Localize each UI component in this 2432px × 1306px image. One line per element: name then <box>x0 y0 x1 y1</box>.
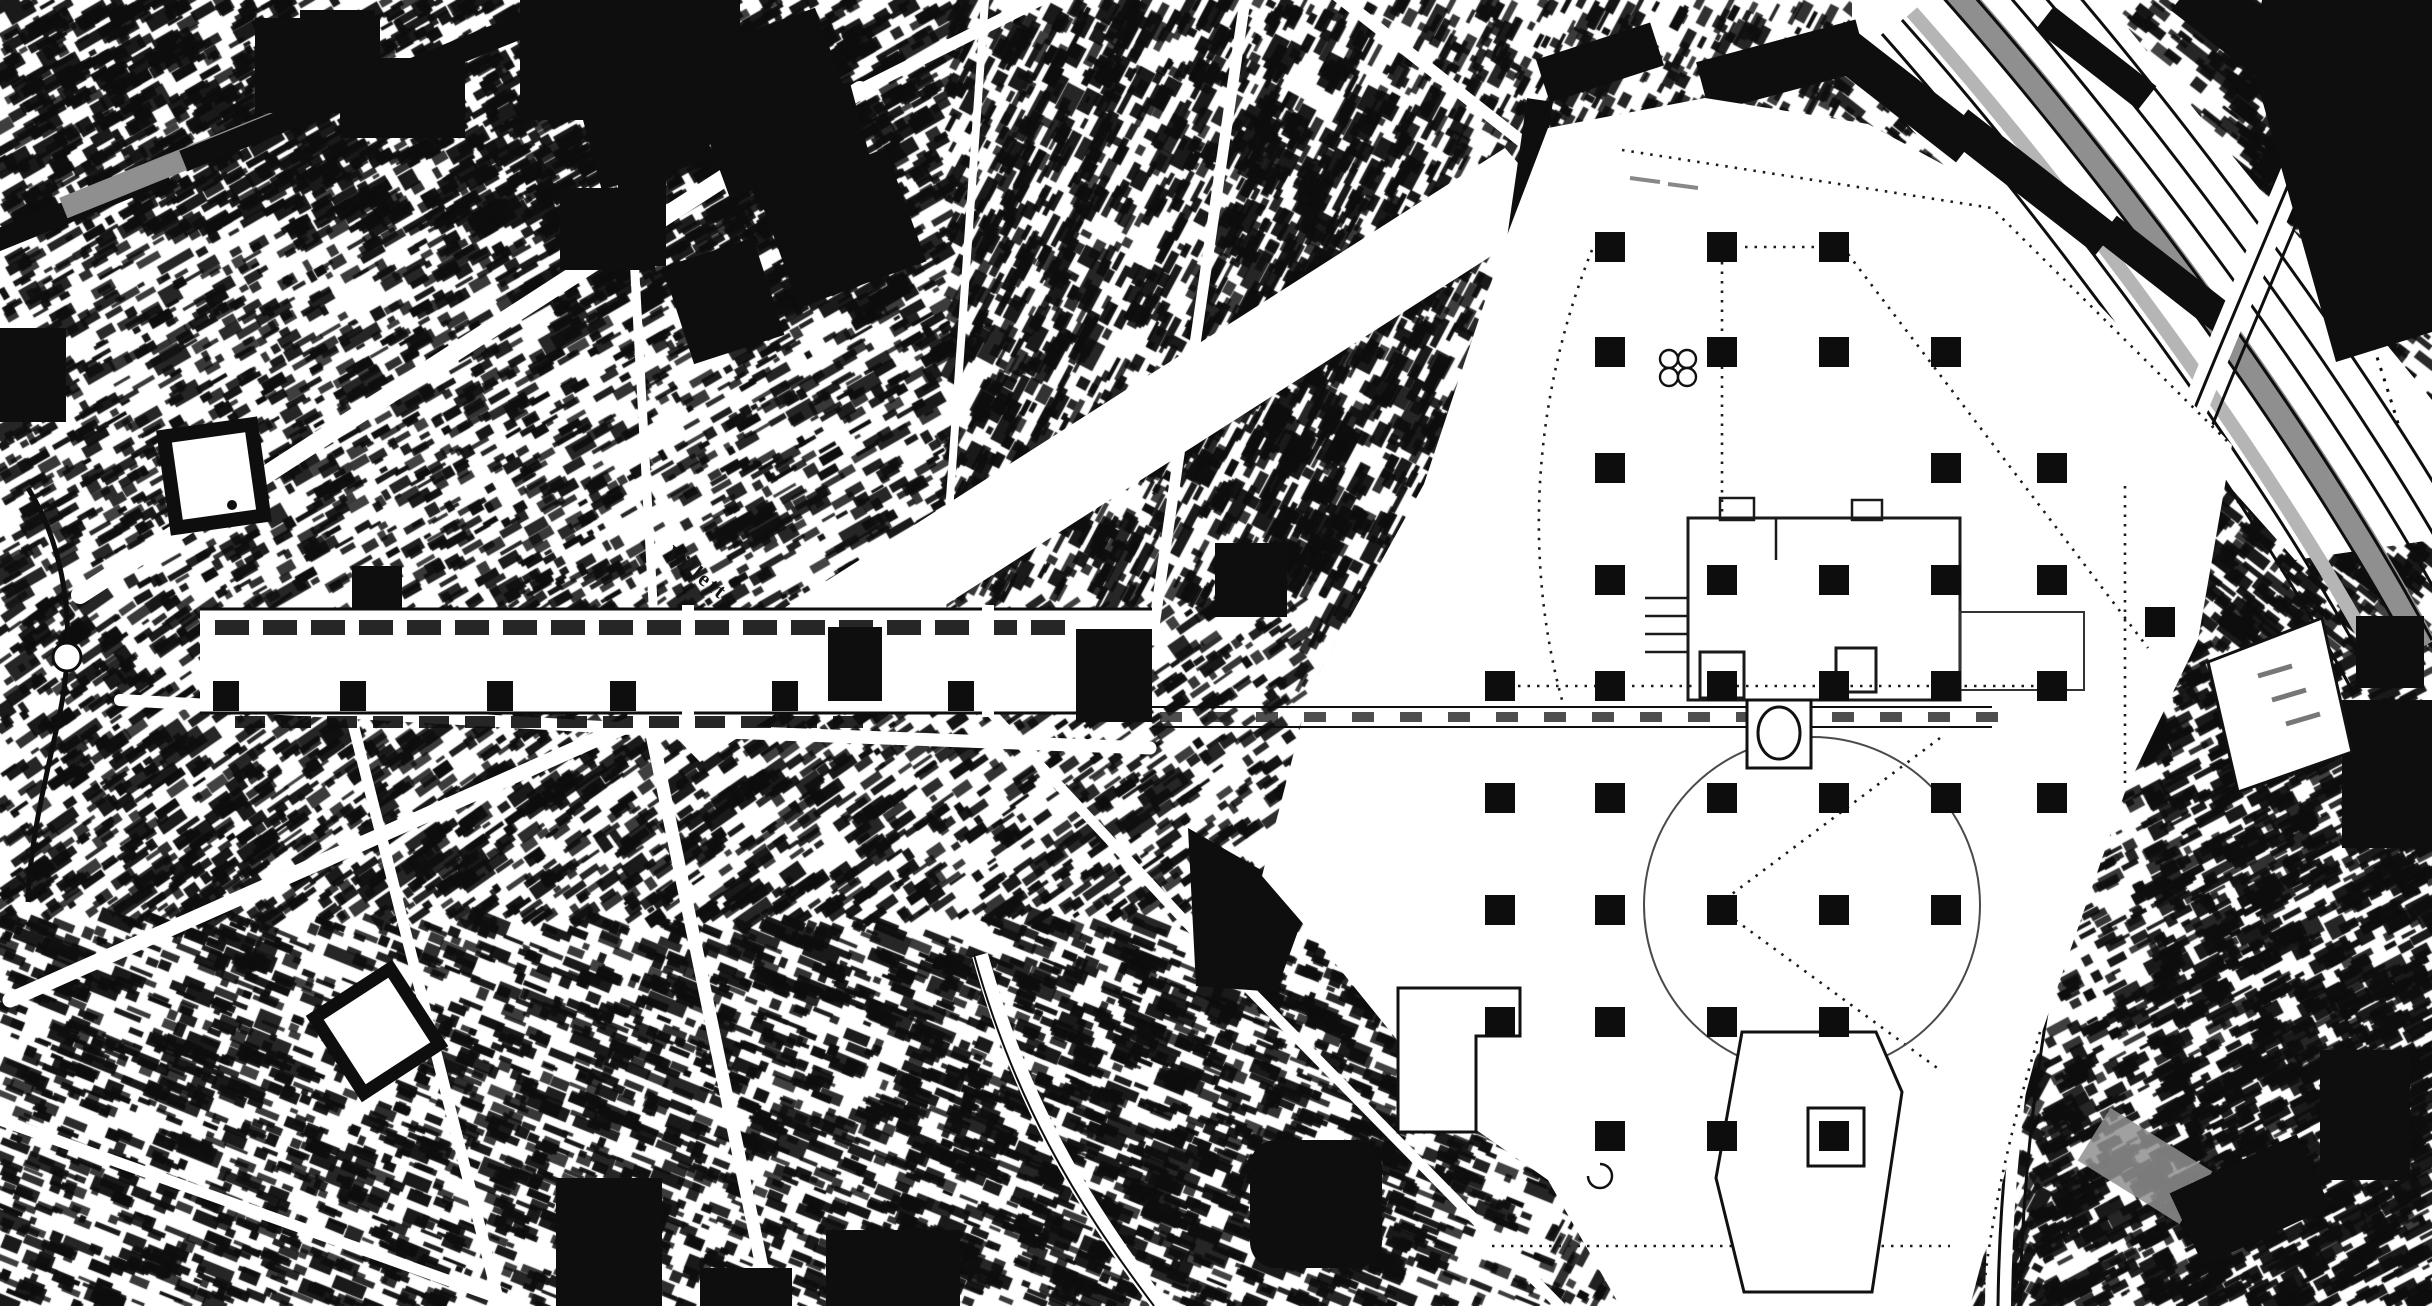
street <box>1330 0 1548 162</box>
folly-square <box>1819 895 1849 925</box>
basin-end-building <box>828 627 882 701</box>
folly-square <box>1819 1007 1849 1037</box>
quay-warehouse-dash <box>1031 620 1065 635</box>
folly-square <box>1595 1121 1625 1151</box>
park-canal-dash <box>1496 712 1518 722</box>
folly-square <box>1595 671 1625 701</box>
large-building <box>1215 543 1287 617</box>
large-building <box>1696 20 1869 113</box>
park-canal-dash <box>1976 712 1998 722</box>
large-building <box>556 1178 662 1306</box>
large-building <box>2356 616 2424 688</box>
quay-warehouse-dash <box>263 620 297 635</box>
ring-boulevard-arc <box>28 488 68 902</box>
quay-warehouse-dash <box>603 716 633 728</box>
park-canal-dash <box>1448 712 1470 722</box>
folly-square <box>1931 337 1961 367</box>
quay-warehouse-dash <box>647 620 681 635</box>
canal-bridge <box>982 605 994 717</box>
street <box>0 1120 520 1306</box>
folly-square <box>1707 337 1737 367</box>
folly-square <box>1707 232 1737 262</box>
large-building <box>2342 700 2432 848</box>
round-building <box>1250 1140 1382 1268</box>
courtyard-dot <box>227 500 237 510</box>
quay-warehouse-dash <box>419 716 449 728</box>
large-building <box>618 126 666 266</box>
quay-warehouse-dash <box>787 716 817 728</box>
folly-square <box>1707 1007 1737 1037</box>
folly-square <box>1707 783 1737 813</box>
park-canal-dash <box>1832 712 1854 722</box>
large-building <box>826 1230 960 1306</box>
quay-block <box>772 681 798 711</box>
folly-square <box>1707 565 1737 595</box>
folly-square <box>1595 232 1625 262</box>
quay-warehouse-dash <box>741 716 771 728</box>
quatrefoil-pavilion <box>1678 368 1696 386</box>
park-canal-dash <box>1544 712 1566 722</box>
large-building <box>340 58 465 138</box>
folly-square <box>2037 453 2067 483</box>
folly-square <box>1931 783 1961 813</box>
park-canal-dash <box>1928 712 1950 722</box>
canal-bridge <box>682 605 694 717</box>
quay-warehouse-dash <box>465 716 495 728</box>
folly-square <box>1819 232 1849 262</box>
city-map: Villette <box>0 0 2432 1306</box>
folly-square <box>1819 783 1849 813</box>
folly-square <box>1485 783 1515 813</box>
park-canal-dash <box>1208 712 1230 722</box>
folly-square <box>2037 565 2067 595</box>
quay-warehouse-dash <box>455 620 489 635</box>
quatrefoil-pavilion <box>1660 350 1678 368</box>
map-overlay: Villette <box>0 0 2432 1306</box>
large-building <box>2320 1050 2410 1180</box>
quay-warehouse-dash <box>235 716 265 728</box>
park-canal-dash <box>1160 712 1182 722</box>
folly-square <box>1707 1121 1737 1151</box>
quay-warehouse-dash <box>281 716 311 728</box>
folly-square <box>1931 565 1961 595</box>
large-building <box>700 1268 792 1306</box>
large-building <box>2170 1134 2331 1266</box>
large-building <box>300 10 375 55</box>
large-building <box>663 238 785 364</box>
curved-street <box>980 955 1160 1306</box>
large-building <box>0 328 66 422</box>
quay-block <box>610 681 636 711</box>
quay-warehouse-dash <box>833 716 863 728</box>
quay-warehouse-dash <box>887 620 921 635</box>
folly-square <box>1819 1121 1849 1151</box>
quay-warehouse-dash <box>557 716 587 728</box>
small-rotunda <box>53 643 81 671</box>
map-labels: Villette <box>661 540 742 611</box>
park-canal-dash <box>1352 712 1374 722</box>
street <box>10 720 640 1000</box>
warehouse-outline <box>2208 618 2352 792</box>
folly-square <box>1485 1007 1515 1037</box>
quatrefoil-pavilion <box>1660 368 1678 386</box>
quay-block <box>213 681 239 711</box>
quay-warehouse-dash <box>511 716 541 728</box>
quay-warehouse-dash <box>551 620 585 635</box>
courtyard-building <box>164 424 264 527</box>
folly-square <box>1595 1007 1625 1037</box>
large-building <box>1536 23 1664 103</box>
folly-square <box>2145 607 2175 637</box>
quay-warehouse-dash <box>743 620 777 635</box>
quay-warehouse-dash <box>791 620 825 635</box>
folly-square <box>1595 783 1625 813</box>
park-canal-dash <box>1256 712 1278 722</box>
folly-square <box>1595 895 1625 925</box>
quay-warehouse-dash <box>503 620 537 635</box>
large-building <box>352 566 402 610</box>
quay-warehouse-dash <box>311 620 345 635</box>
folly-square <box>1819 565 1849 595</box>
park-canal-dash <box>1880 712 1902 722</box>
folly-square <box>1595 565 1625 595</box>
folly-square <box>2037 783 2067 813</box>
street <box>650 725 770 1306</box>
villette-label: Villette <box>661 540 742 611</box>
canal-basin <box>200 605 1152 728</box>
folly-square <box>1707 895 1737 925</box>
park-canal-dash <box>1400 712 1422 722</box>
folly-square <box>1819 671 1849 701</box>
folly-square <box>1485 671 1515 701</box>
folly-square <box>1931 671 1961 701</box>
quay-warehouse-dash <box>935 620 969 635</box>
basin-end-building <box>1076 629 1152 722</box>
quay-warehouse-dash <box>327 716 357 728</box>
quay-block <box>340 681 366 711</box>
quay-warehouse-dash <box>695 716 725 728</box>
quay-warehouse-dash <box>407 620 441 635</box>
folly-square <box>1707 671 1737 701</box>
folly-square <box>1931 453 1961 483</box>
folly-square <box>1595 453 1625 483</box>
quay-warehouse-dash <box>599 620 633 635</box>
quay-block <box>487 681 513 711</box>
quay-warehouse-dash <box>359 620 393 635</box>
quay-warehouse-dash <box>649 716 679 728</box>
quay-warehouse-dash <box>695 620 729 635</box>
folly-square <box>2037 671 2067 701</box>
park-canal-dash <box>1688 712 1710 722</box>
park-canal-dash <box>1304 712 1326 722</box>
quatrefoil-pavilion <box>1678 350 1696 368</box>
quay-warehouse-dash <box>373 716 403 728</box>
folly-square <box>1595 337 1625 367</box>
folly-square <box>1931 895 1961 925</box>
folly-square <box>1485 895 1515 925</box>
park-canal-dash <box>1592 712 1614 722</box>
quay-warehouse-dash <box>215 620 249 635</box>
quay-block <box>948 681 974 711</box>
street <box>860 0 1060 90</box>
park-canal-dash <box>1640 712 1662 722</box>
folly-square <box>1819 337 1849 367</box>
